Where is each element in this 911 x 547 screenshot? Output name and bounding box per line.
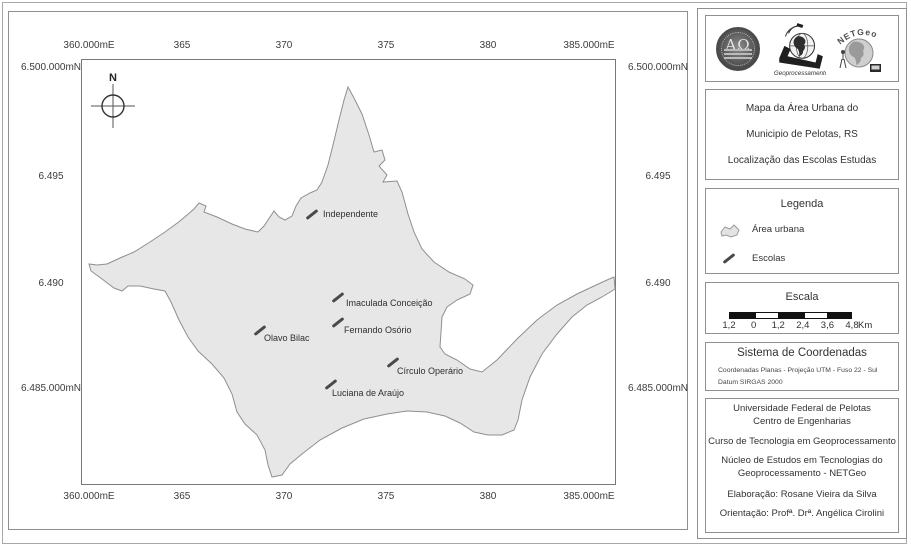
coordinate-system-box: Sistema de Coordenadas Coordenadas Plana…	[705, 342, 899, 391]
x-axis-label-bottom: 375	[378, 491, 395, 502]
datum-line: Datum SIRGAS 2000	[718, 379, 783, 386]
north-arrow-icon: N	[84, 64, 142, 138]
school-label: Olavo Bilac	[264, 333, 310, 343]
geoprocessamento-wordmark: Geoprocessamento	[774, 70, 826, 77]
legend-box: Legenda Área urbana Escolas	[705, 188, 899, 274]
credits-group: Elaboração: Rosane Vieira da Silva	[706, 488, 898, 501]
north-letter: N	[109, 72, 117, 84]
credits-group: Universidade Federal de PelotasCentro de…	[706, 402, 898, 428]
map-title-line-1: Mapa da Área Urbana do	[706, 96, 898, 122]
x-axis-label-bottom: 385.000mE	[563, 491, 614, 502]
map-frame: N IndependenteImaculada ConceiçãoFernand…	[81, 59, 616, 485]
credits-line: Elaboração: Rosane Vieira da Silva	[706, 488, 898, 501]
x-axis-label-top: 385.000mE	[563, 40, 614, 51]
projection-line: Coordenadas Planas - Projeção UTM - Fuso…	[718, 367, 877, 374]
x-axis-label-bottom: 360.000mE	[63, 491, 114, 502]
urban-area-swatch-icon	[718, 223, 742, 239]
credits-box: Universidade Federal de PelotasCentro de…	[705, 398, 899, 533]
y-axis-label-right: 6.500.000mN	[628, 62, 688, 73]
y-axis-label-left: 6.500.000mN	[21, 62, 81, 73]
urban-area-polygon	[89, 87, 615, 477]
map-title-box: Mapa da Área Urbana do Municipio de Pelo…	[705, 89, 899, 180]
x-axis-label-top: 360.000mE	[63, 40, 114, 51]
school-label: Luciana de Araújo	[332, 388, 404, 398]
scale-unit: Km	[858, 320, 872, 331]
credits-line: Curso de Tecnologia em Geoprocessamento	[706, 435, 898, 448]
scale-heading: Escala	[706, 291, 898, 303]
y-axis-label-right: 6.490	[645, 278, 670, 289]
map-panel: N IndependenteImaculada ConceiçãoFernand…	[8, 11, 688, 530]
geoprocessamento-logo: Geoprocessamento	[774, 23, 826, 77]
y-axis-label-left: 6.490	[38, 278, 63, 289]
coordinate-system-heading: Sistema de Coordenadas	[706, 347, 898, 359]
x-axis-label-bottom: 365	[174, 491, 191, 502]
credits-line: Geoprocessamento - NETGeo	[706, 467, 898, 480]
urban-area-map	[82, 60, 616, 485]
scale-tick-label: 3,6	[821, 320, 834, 331]
ufpel-seal-logo: ΑΩ	[716, 27, 760, 71]
y-axis-label-right: 6.495	[645, 171, 670, 182]
scale-box: Escala 1,201,22,43,64,8 Km	[705, 282, 899, 334]
school-label: Círculo Operário	[397, 366, 463, 376]
legend-label-schools: Escolas	[752, 253, 785, 264]
credits-group: Núcleo de Estudos em Tecnologias doGeopr…	[706, 454, 898, 480]
x-axis-label-bottom: 370	[276, 491, 293, 502]
legend-label-urban-area: Área urbana	[752, 224, 804, 235]
school-marker-icon	[723, 253, 736, 264]
scale-tick-label: 4,8	[845, 320, 858, 331]
credits-group: Curso de Tecnologia em Geoprocessamento	[706, 435, 898, 448]
credits-line: Centro de Engenharias	[706, 415, 898, 428]
scale-tick-label: 1,2	[722, 320, 735, 331]
school-label: Independente	[323, 209, 378, 219]
netgeo-logo: NETGeo	[834, 25, 886, 75]
map-title-line-2: Municipio de Pelotas, RS	[706, 122, 898, 148]
school-label: Fernando Osório	[344, 325, 412, 335]
logos-box: ΑΩ Geoprocessamento NETGeo	[705, 15, 899, 82]
credits-line: Orientação: Profª. Drª. Angélica Cirolin…	[706, 507, 898, 520]
y-axis-label-left: 6.485.000mN	[21, 383, 81, 394]
legend-heading: Legenda	[706, 198, 898, 210]
x-axis-label-top: 380	[480, 40, 497, 51]
x-axis-label-top: 375	[378, 40, 395, 51]
x-axis-label-top: 370	[276, 40, 293, 51]
map-marginalia-panel: ΑΩ Geoprocessamento NETGeo	[697, 8, 907, 539]
y-axis-label-left: 6.495	[38, 171, 63, 182]
legend-item-urban-area: Área urbana	[706, 221, 898, 239]
scale-bar	[729, 312, 852, 319]
credits-group: Orientação: Profª. Drª. Angélica Cirolin…	[706, 507, 898, 520]
y-axis-label-right: 6.485.000mN	[628, 383, 688, 394]
x-axis-label-top: 365	[174, 40, 191, 51]
map-title-line-3: Localização das Escolas Estudas	[706, 148, 898, 174]
seal-bands	[724, 47, 751, 61]
legend-item-schools: Escolas	[706, 250, 898, 268]
school-label: Imaculada Conceição	[346, 298, 433, 308]
credits-line: Núcleo de Estudos em Tecnologias do	[706, 454, 898, 467]
credits-line: Universidade Federal de Pelotas	[706, 402, 898, 415]
x-axis-label-bottom: 380	[480, 491, 497, 502]
scale-tick-label: 1,2	[772, 320, 785, 331]
scale-tick-label: 2,4	[796, 320, 809, 331]
scale-tick-label: 0	[751, 320, 756, 331]
